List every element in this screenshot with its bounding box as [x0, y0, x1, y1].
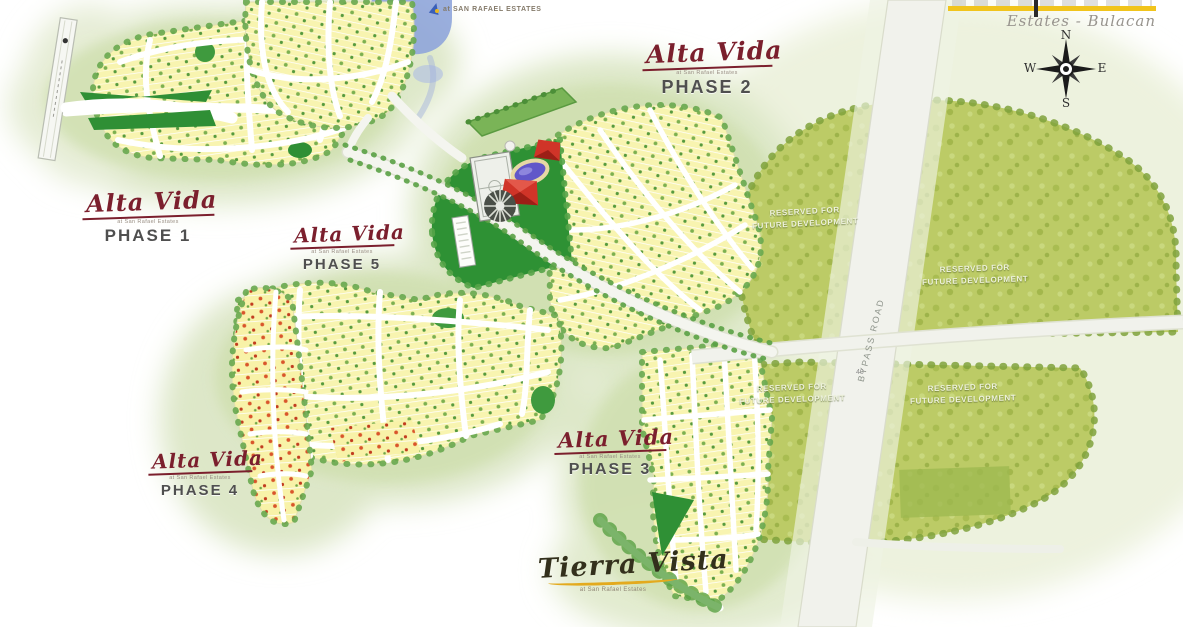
phase5-name: PHASE 5 [290, 256, 394, 273]
phase1-name: PHASE 1 [82, 226, 214, 246]
reserved-label-3: RESERVED FOR FUTURE DEVELOPMENT [722, 380, 863, 409]
phase3-name: PHASE 3 [554, 461, 666, 479]
phase4-subtext: at San Rafael Estates [148, 475, 252, 481]
road-lot-marking: 40 [856, 369, 864, 376]
reserved-label-2: RESERVED FOR FUTURE DEVELOPMENT [905, 261, 1046, 290]
phase3-subtext: at San Rafael Estates [554, 454, 666, 460]
phase2-name: PHASE 2 [642, 77, 772, 98]
phase1-script: Alta Vida [82, 188, 215, 221]
brand-yellow-bar [948, 6, 1156, 11]
label-phase-2: Alta Vida at San Rafael Estates PHASE 2 [642, 40, 772, 98]
compass-w: W [1022, 61, 1038, 75]
brand-estates-line: Estates - Bulacan [948, 12, 1156, 30]
compass-s: S [1058, 96, 1074, 110]
tierra-vista-subtext: at San Rafael Estates [538, 587, 688, 593]
compass-n: N [1058, 28, 1074, 42]
san-rafael-logo-icon [430, 3, 440, 15]
brand-top-right: Estates - Bulacan [948, 0, 1160, 30]
compass-e: E [1094, 61, 1110, 75]
label-phase-3: Alta Vida at San Rafael Estates PHASE 3 [554, 428, 666, 479]
phase4-name: PHASE 4 [148, 482, 252, 499]
label-phase-1: Alta Vida at San Rafael Estates PHASE 1 [82, 190, 214, 246]
phase2-subtext: at San Rafael Estates [642, 70, 772, 76]
amenity-clubhouse-roof-small [534, 139, 562, 160]
label-phase-4: Alta Vida at San Rafael Estates PHASE 4 [148, 450, 252, 499]
san-rafael-estates-text: at SAN RAFAEL ESTATES [443, 6, 542, 13]
phase5-script: Alta Vida [290, 222, 395, 250]
phase5-subtext: at San Rafael Estates [290, 249, 394, 255]
site-plan-graphic [0, 0, 1183, 627]
reserved-label-4: RESERVED FOR FUTURE DEVELOPMENT [893, 380, 1034, 409]
brand-logo-tick [1034, 0, 1038, 17]
phase2-script: Alta Vida [642, 38, 773, 72]
label-tierra-vista: Tierra Vista at San Rafael Estates [538, 552, 688, 593]
phase4-script: Alta Vida [148, 448, 253, 476]
masterplan-map: Estates - Bulacan at SAN RAFAEL ESTATES … [0, 0, 1183, 627]
phase3-script: Alta Vida [554, 426, 667, 455]
label-phase-5: Alta Vida at San Rafael Estates PHASE 5 [290, 224, 394, 273]
brand-top-center: at SAN RAFAEL ESTATES [430, 3, 542, 15]
phase1-subtext: at San Rafael Estates [82, 219, 214, 225]
